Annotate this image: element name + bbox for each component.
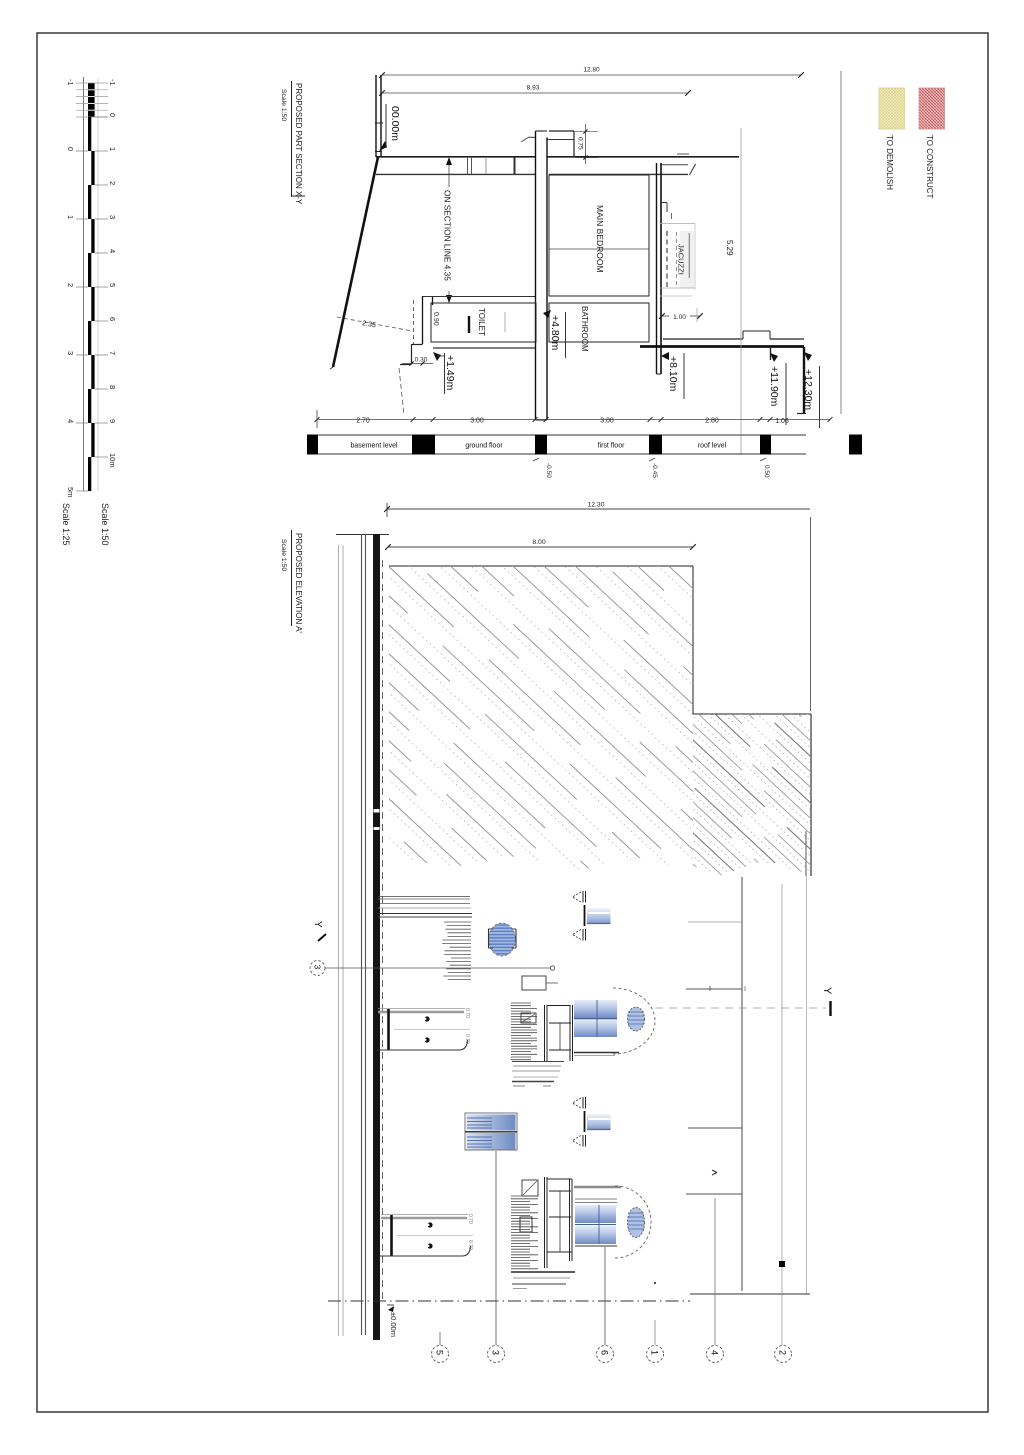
svg-text:first floor: first floor xyxy=(598,443,626,450)
svg-text:0.30: 0.30 xyxy=(415,357,428,364)
svg-text:5: 5 xyxy=(108,283,117,287)
svg-text:basement level: basement level xyxy=(350,443,398,450)
svg-text:Scale 1:50: Scale 1:50 xyxy=(280,89,287,121)
svg-text:0.70: 0.70 xyxy=(467,1214,473,1224)
svg-text:3: 3 xyxy=(108,215,117,219)
svg-text:5.29: 5.29 xyxy=(725,240,734,256)
svg-text:2.70: 2.70 xyxy=(356,418,370,425)
svg-text:Y: Y xyxy=(312,921,323,928)
svg-text:1: 1 xyxy=(108,147,117,151)
svg-text:2.80: 2.80 xyxy=(705,418,719,425)
svg-text:6: 6 xyxy=(108,317,117,321)
svg-text:2: 2 xyxy=(108,181,117,185)
svg-text:3.00: 3.00 xyxy=(600,418,614,425)
svg-text:2: 2 xyxy=(778,1350,788,1355)
svg-text:9: 9 xyxy=(108,419,117,423)
svg-text:+8.10m: +8.10m xyxy=(667,356,679,392)
svg-text:10m: 10m xyxy=(108,453,117,468)
svg-text:4: 4 xyxy=(66,419,75,423)
svg-text:+11.90m: +11.90m xyxy=(768,366,780,407)
svg-text:2: 2 xyxy=(66,283,75,287)
svg-text:±0.00m: ±0.00m xyxy=(389,1312,398,1337)
svg-text:ground floor: ground floor xyxy=(465,443,503,450)
svg-text:Scale 1:50: Scale 1:50 xyxy=(100,503,110,546)
svg-text:roof level: roof level xyxy=(698,443,727,450)
svg-text:1: 1 xyxy=(650,1350,660,1355)
svg-text:5m: 5m xyxy=(66,487,75,497)
svg-text:1.00: 1.00 xyxy=(673,314,686,321)
svg-text:-0.50: -0.50 xyxy=(545,463,552,478)
svg-text:1: 1 xyxy=(66,215,75,219)
svg-text:5: 5 xyxy=(435,1350,445,1355)
svg-text:+1.49m: +1.49m xyxy=(444,355,456,391)
svg-text:0.70: 0.70 xyxy=(464,1034,470,1044)
svg-text:8: 8 xyxy=(108,385,117,389)
svg-text:Scale 1:50: Scale 1:50 xyxy=(280,539,287,571)
svg-text:6: 6 xyxy=(600,1350,610,1355)
svg-text:0.70: 0.70 xyxy=(467,1240,473,1250)
svg-text:3: 3 xyxy=(313,965,323,970)
svg-text:-1: -1 xyxy=(108,79,117,86)
svg-text:ON SECTION LINE 4.35: ON SECTION LINE 4.35 xyxy=(443,190,453,281)
svg-text:0: 0 xyxy=(66,147,75,151)
svg-text:8.00: 8.00 xyxy=(532,539,545,546)
svg-text:00.00m: 00.00m xyxy=(389,106,401,141)
svg-text:4: 4 xyxy=(108,249,117,253)
svg-text:8.93: 8.93 xyxy=(527,85,540,92)
svg-text:1.06: 1.06 xyxy=(775,418,789,425)
svg-text:-0.45: -0.45 xyxy=(651,463,658,478)
svg-text:4: 4 xyxy=(710,1350,720,1355)
svg-text:0.90: 0.90 xyxy=(432,312,439,326)
svg-text:3: 3 xyxy=(491,1350,501,1355)
svg-text:0.50: 0.50 xyxy=(763,465,770,478)
svg-text:TO DEMOLISH: TO DEMOLISH xyxy=(885,135,894,190)
svg-text:-1: -1 xyxy=(66,79,75,86)
svg-text:TO CONSTRUCT: TO CONSTRUCT xyxy=(925,135,934,199)
svg-text:12.30: 12.30 xyxy=(587,502,604,509)
svg-text:JACUZZI: JACUZZI xyxy=(677,244,686,275)
svg-text:+12.30m: +12.30m xyxy=(802,369,814,410)
svg-text:PROPOSED PART SECTION X-Y: PROPOSED PART SECTION X-Y xyxy=(294,83,303,205)
svg-text:12.80: 12.80 xyxy=(583,67,600,74)
svg-text:BATHROOM: BATHROOM xyxy=(580,306,589,352)
svg-text:7: 7 xyxy=(108,351,117,355)
svg-text:Y: Y xyxy=(821,987,833,995)
svg-text:TOILET: TOILET xyxy=(477,308,486,336)
svg-text:0: 0 xyxy=(108,113,117,117)
svg-text:MAIN BEDROOM: MAIN BEDROOM xyxy=(595,205,605,273)
svg-text:0.70: 0.70 xyxy=(464,1008,470,1018)
svg-text:Scale 1:25: Scale 1:25 xyxy=(61,503,71,546)
svg-text:3.00: 3.00 xyxy=(470,418,484,425)
svg-text:3: 3 xyxy=(66,351,75,355)
svg-text:PROPOSED ELEVATION A': PROPOSED ELEVATION A' xyxy=(294,533,303,633)
svg-text:0.75: 0.75 xyxy=(577,137,584,150)
svg-text:+4.80m: +4.80m xyxy=(549,315,561,351)
